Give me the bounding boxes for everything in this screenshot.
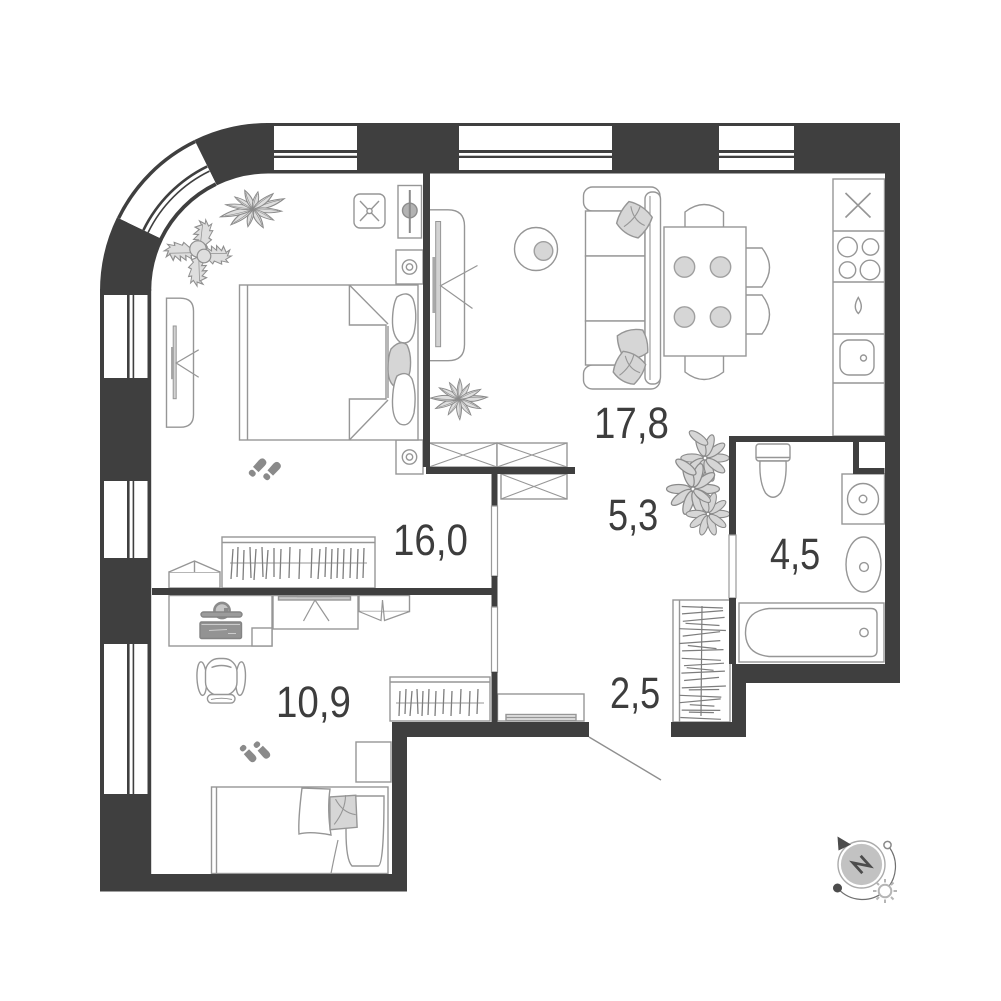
svg-text:16,0: 16,0 [393, 516, 468, 565]
svg-text:17,8: 17,8 [594, 399, 669, 448]
svg-text:5,3: 5,3 [608, 491, 658, 540]
svg-text:2,5: 2,5 [610, 669, 660, 718]
svg-text:4,5: 4,5 [770, 530, 820, 579]
svg-text:10,9: 10,9 [276, 678, 351, 727]
